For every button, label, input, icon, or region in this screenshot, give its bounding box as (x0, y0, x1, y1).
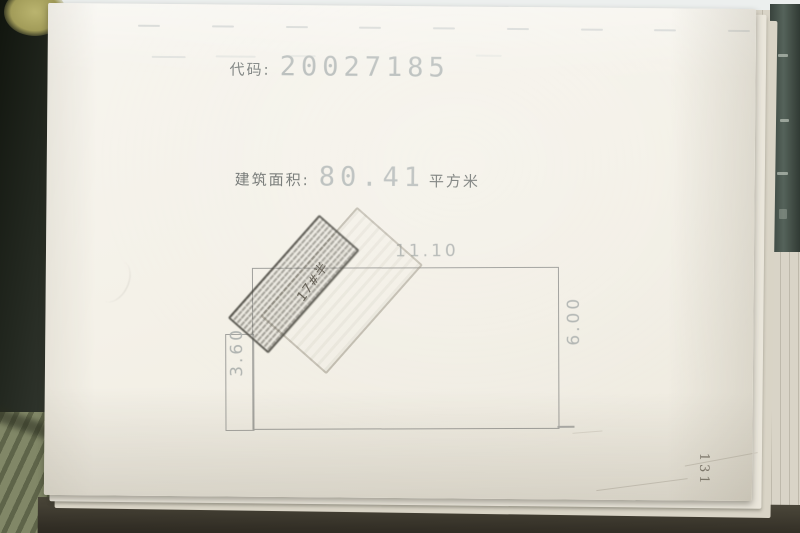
band-reflection-mark (780, 119, 789, 122)
perforation-dash (212, 25, 234, 27)
faint-pencil-scribble (91, 255, 137, 307)
band-reflection-mark (777, 172, 788, 175)
perforation-dash (728, 30, 750, 32)
perforation-dash (285, 26, 307, 28)
area-label: 建筑面积: (235, 169, 310, 191)
perforation-dash (507, 28, 529, 30)
paper-crease (596, 478, 687, 491)
dimension-tick (557, 426, 574, 428)
band-reflection-mark (779, 209, 787, 219)
perforation-dashes (138, 25, 750, 32)
document-page: 代码: 20027185 建筑面积: 80.41 平方米 11.10 6.00 … (44, 3, 756, 501)
band-reflection-mark (778, 54, 788, 57)
perforation-dash (138, 25, 160, 27)
area-unit: 平方米 (429, 170, 480, 191)
building-area-line: 建筑面积: 80.41 平方米 (235, 161, 481, 194)
page-number: 131 (693, 448, 711, 492)
perforation-dash (359, 27, 381, 29)
dimension-right: 6.00 (564, 293, 586, 349)
code-value: 20027185 (280, 51, 450, 83)
perforation-dash (433, 27, 455, 29)
faint-print-line (152, 56, 186, 58)
perforation-dash (580, 29, 602, 31)
faint-print-line (476, 55, 502, 57)
code-line: 代码: 20027185 (229, 51, 449, 84)
area-value: 80.41 (319, 161, 426, 193)
photo-of-floorplan-document: 代码: 20027185 建筑面积: 80.41 平方米 11.10 6.00 … (0, 0, 800, 533)
code-label: 代码: (229, 59, 270, 80)
perforation-dash (654, 29, 676, 31)
